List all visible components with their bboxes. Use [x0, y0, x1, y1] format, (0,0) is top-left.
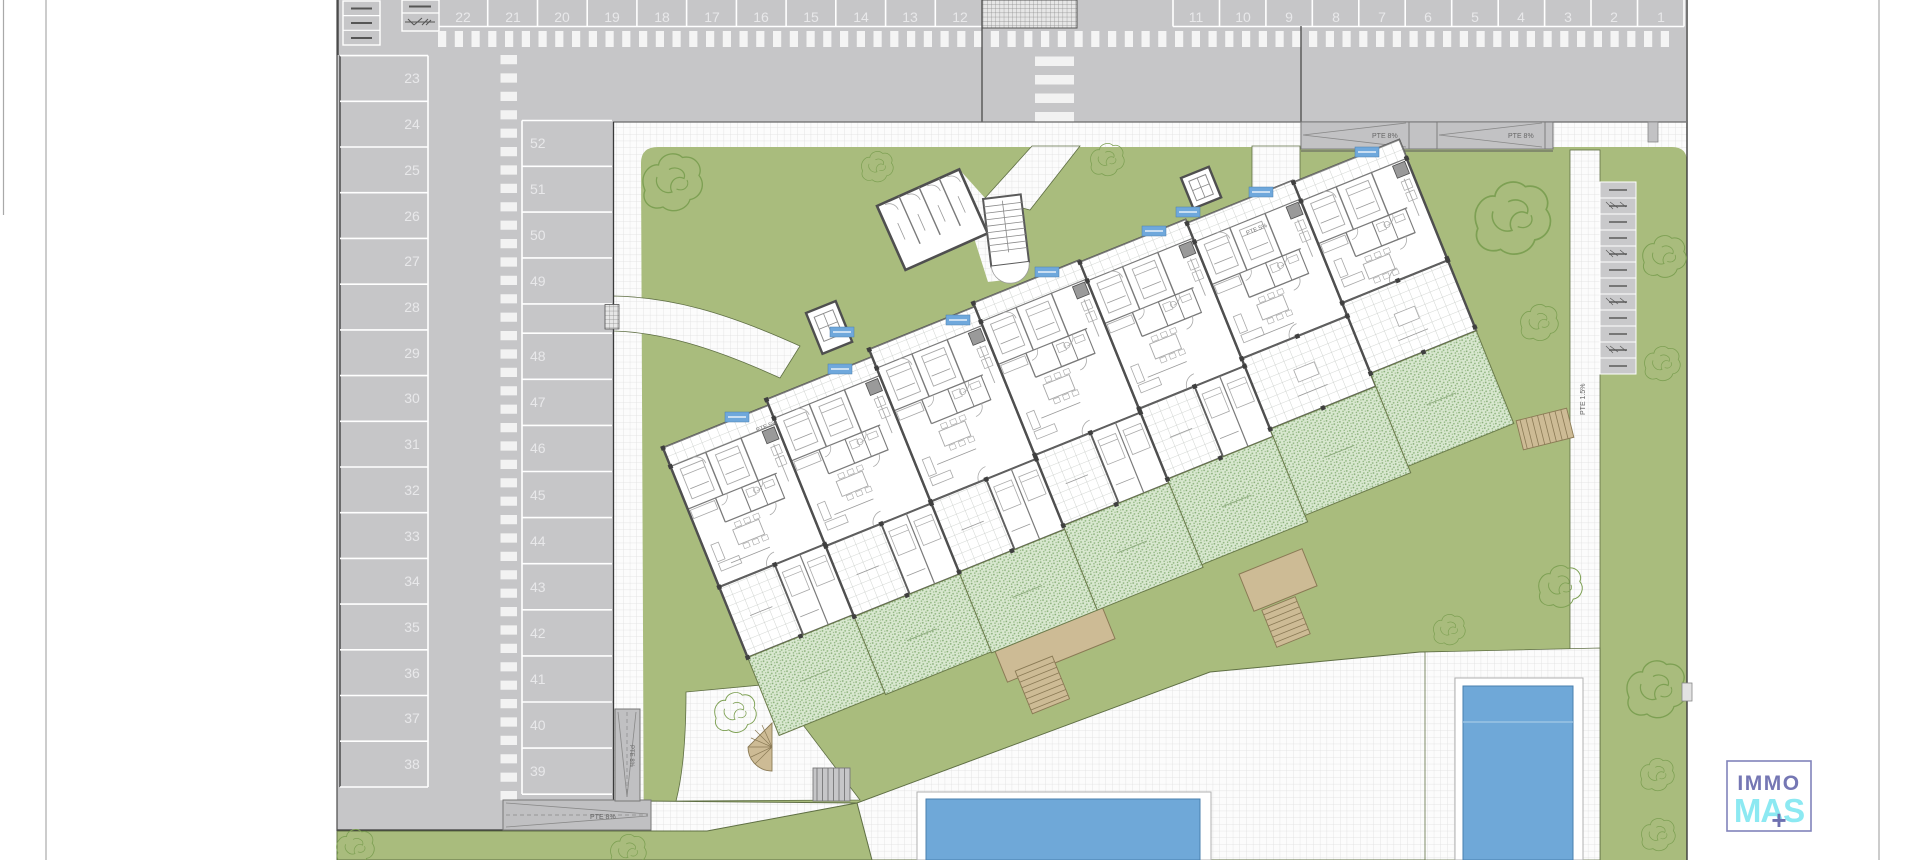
svg-text:50: 50 [530, 227, 546, 243]
svg-text:28: 28 [404, 299, 420, 315]
svg-text:31: 31 [404, 436, 420, 452]
svg-text:52: 52 [530, 135, 546, 151]
svg-text:PTE 8%: PTE 8% [1508, 133, 1534, 140]
svg-text:30: 30 [404, 390, 420, 406]
svg-text:12: 12 [952, 9, 968, 25]
svg-text:51: 51 [530, 181, 546, 197]
svg-text:+: + [1771, 805, 1786, 835]
svg-text:7: 7 [1378, 9, 1386, 25]
svg-text:PTE 8%: PTE 8% [1372, 133, 1398, 140]
svg-text:36: 36 [404, 665, 420, 681]
svg-text:11: 11 [1189, 9, 1204, 25]
svg-text:38: 38 [404, 756, 420, 772]
svg-text:PTE 8%: PTE 8% [590, 814, 616, 821]
svg-text:42: 42 [530, 625, 546, 641]
svg-text:20: 20 [554, 9, 570, 25]
svg-text:44: 44 [530, 533, 546, 549]
svg-text:PTE 8%: PTE 8% [628, 745, 634, 768]
svg-text:6: 6 [1424, 9, 1432, 25]
svg-text:1: 1 [1657, 9, 1665, 25]
svg-text:27: 27 [404, 253, 420, 269]
svg-text:4: 4 [1517, 9, 1525, 25]
svg-text:22: 22 [455, 9, 471, 25]
svg-text:25: 25 [404, 162, 420, 178]
svg-text:33: 33 [404, 528, 420, 544]
svg-text:17: 17 [704, 9, 720, 25]
svg-text:14: 14 [853, 9, 869, 25]
svg-text:9: 9 [1285, 9, 1293, 25]
svg-text:29: 29 [404, 345, 420, 361]
svg-text:16: 16 [753, 9, 769, 25]
svg-text:2: 2 [1610, 9, 1618, 25]
svg-text:8: 8 [1332, 9, 1340, 25]
svg-text:46: 46 [530, 440, 546, 456]
svg-text:43: 43 [530, 579, 546, 595]
svg-text:13: 13 [902, 9, 918, 25]
svg-text:19: 19 [604, 9, 620, 25]
svg-text:18: 18 [654, 9, 670, 25]
svg-text:10: 10 [1235, 9, 1251, 25]
svg-text:23: 23 [404, 70, 420, 86]
svg-text:24: 24 [404, 116, 420, 132]
svg-text:49: 49 [530, 273, 546, 289]
svg-text:3: 3 [1564, 9, 1572, 25]
svg-text:41: 41 [530, 671, 546, 687]
svg-text:47: 47 [530, 394, 546, 410]
svg-text:MAS: MAS [1734, 792, 1804, 829]
svg-text:35: 35 [404, 619, 420, 635]
svg-text:15: 15 [803, 9, 819, 25]
svg-text:26: 26 [404, 208, 420, 224]
svg-text:34: 34 [404, 573, 420, 589]
svg-text:39: 39 [530, 763, 546, 779]
svg-text:48: 48 [530, 348, 546, 364]
svg-text:37: 37 [404, 710, 420, 726]
svg-text:21: 21 [505, 9, 521, 25]
svg-text:32: 32 [404, 482, 420, 498]
svg-text:PTE 1.5%: PTE 1.5% [1580, 383, 1587, 415]
svg-text:5: 5 [1471, 9, 1479, 25]
svg-text:40: 40 [530, 717, 546, 733]
svg-text:45: 45 [530, 487, 546, 503]
